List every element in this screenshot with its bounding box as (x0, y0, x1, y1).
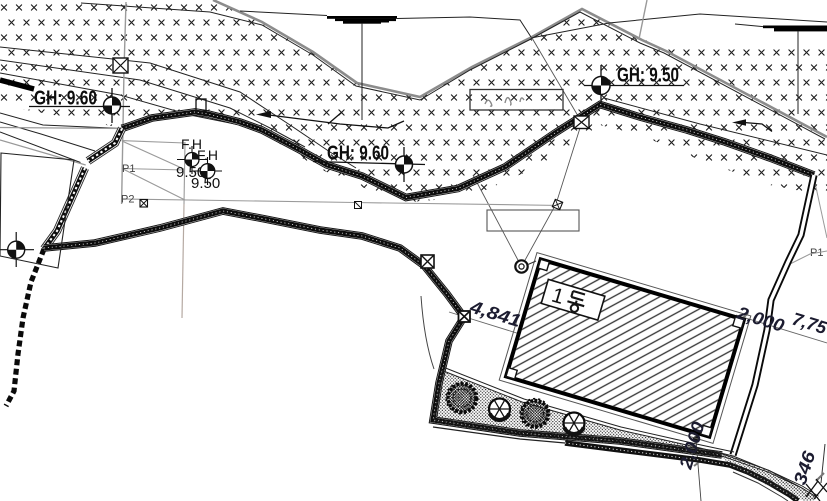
svg-text:GH: 9.60: GH: 9.60 (34, 88, 97, 110)
svg-text:GH: 9.60: GH: 9.60 (327, 143, 389, 165)
svg-text:F.H: F.H (197, 147, 218, 163)
svg-text:9.50: 9.50 (191, 175, 220, 192)
svg-text:P2: P2 (121, 194, 134, 206)
svg-text:P1: P1 (122, 163, 135, 175)
svg-text:GH: 9.50: GH: 9.50 (617, 65, 679, 87)
